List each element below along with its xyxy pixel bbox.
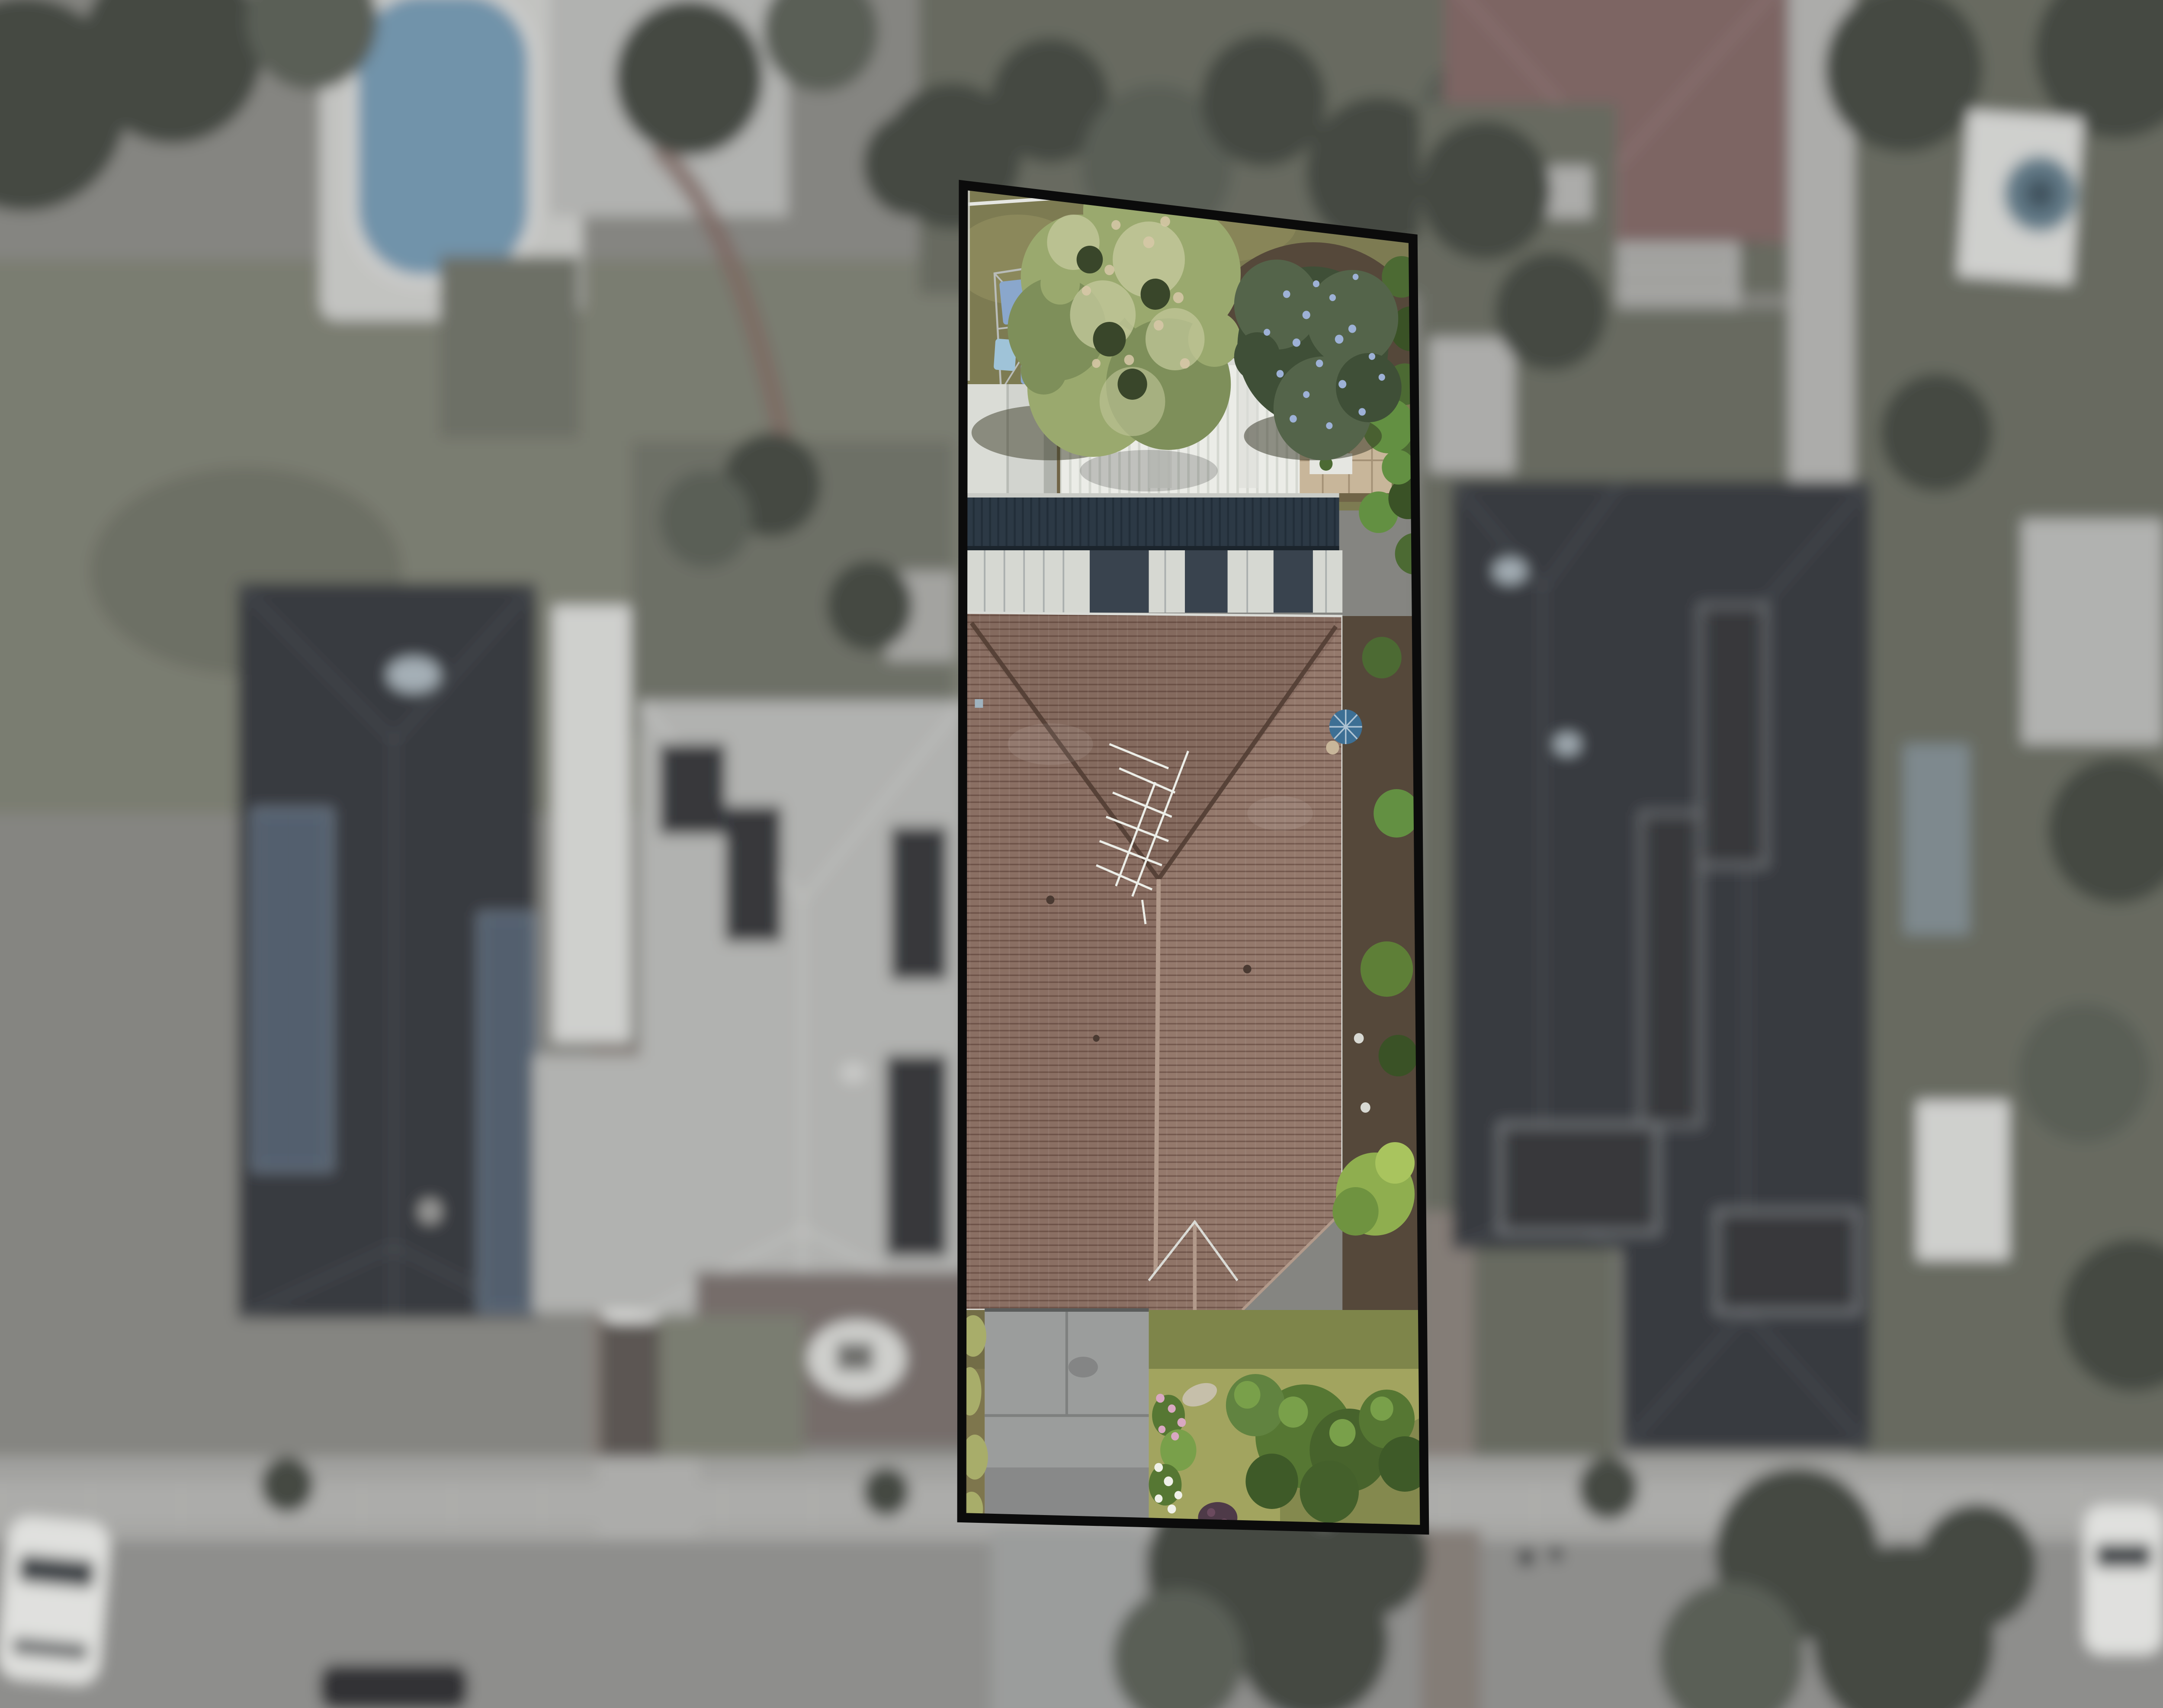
solar-array [660,744,725,834]
solar-array [1641,813,1701,1125]
solar-array [1700,606,1766,865]
solar-array [479,914,537,1312]
right-neighbor-shed [1917,1101,2009,1260]
parked-car-white-left [0,1515,112,1686]
car-dark-bottom [320,1665,468,1708]
driveway [985,1310,1149,1535]
highlighted-lot [952,159,1436,1535]
solar-array [1717,1211,1858,1312]
white-outbuilding [553,606,630,1042]
solar-array [725,806,781,941]
car-white-bottom-right [2084,1506,2163,1654]
front-yard [958,1310,1431,1535]
solar-array [886,1056,947,1256]
carport-wall [965,550,1343,613]
solar-array [1500,1125,1657,1232]
solar-array [891,827,947,979]
left-house [238,583,536,1319]
swimming-pool [353,0,533,280]
far-right-properties [1825,0,2163,1708]
blue-flowering-tree [1234,260,1402,460]
garage-roof [965,493,1339,550]
solar-array [253,810,331,1170]
right-neighbor-driveway [1421,1211,1473,1488]
main-house-roof [958,613,1342,1310]
aerial-photo: Aerial drone photograph of a residential… [0,0,2163,1708]
garden-shed [440,256,579,438]
